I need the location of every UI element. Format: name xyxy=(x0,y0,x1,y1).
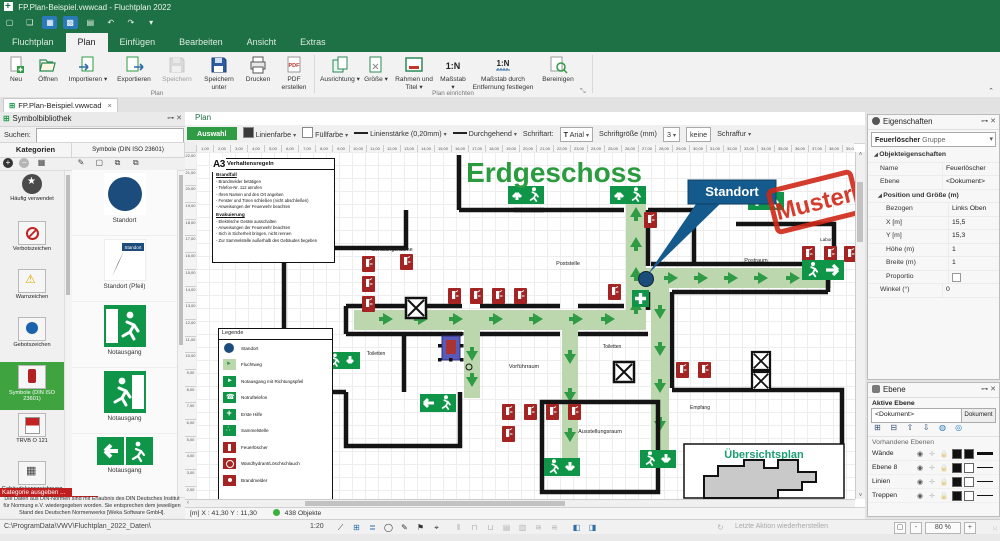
legend-row: Erste Hilfe xyxy=(219,406,332,423)
category-icon xyxy=(18,221,46,245)
legend-icon xyxy=(223,442,236,453)
room-label: Vorführraum xyxy=(509,364,540,370)
rules-section-title: Evakuierung xyxy=(216,212,331,219)
plus-icon[interactable]: ✛ xyxy=(926,478,938,486)
location-dot[interactable] xyxy=(639,272,654,287)
ruler-tick-label: 10,00 xyxy=(185,352,196,369)
close-icon[interactable]: ✕ xyxy=(176,115,182,122)
legend-row: Fluchtweg xyxy=(219,357,332,374)
neu-button[interactable]: Neu xyxy=(2,54,30,94)
canvas-vertical-scrollbar[interactable]: ˄˅ xyxy=(855,152,865,499)
legend-icon xyxy=(223,376,236,387)
category-item[interactable]: Symbole (DIN ISO 23601) xyxy=(0,362,64,410)
zoom-out-button[interactable]: - xyxy=(910,522,922,534)
ruler-tick-label: 15,00 xyxy=(185,269,196,286)
tab-extras[interactable]: Extras xyxy=(288,33,338,52)
exit-sign-up xyxy=(508,186,544,204)
exit-sign-down xyxy=(640,450,676,468)
delete-symbol-icon[interactable]: ▢ xyxy=(93,157,105,168)
eye-icon[interactable]: ◉ xyxy=(914,478,926,486)
tab-bearbeiten[interactable]: Bearbeiten xyxy=(167,33,235,52)
line-style-dropdown[interactable]: Durchgehend ▾ xyxy=(453,127,517,140)
importieren-button[interactable]: Importieren ▾ xyxy=(66,54,110,94)
plus-icon[interactable]: ✛ xyxy=(926,450,938,458)
align-right-icon[interactable]: ⊔ xyxy=(484,522,497,533)
tab-einfuegen[interactable]: Einfügen xyxy=(108,33,168,52)
lock-icon[interactable]: 🔒 xyxy=(938,450,950,458)
legend-icon xyxy=(223,409,236,420)
ungroup-icon[interactable]: ≌ xyxy=(548,522,561,533)
massstab-entfernung-button[interactable]: 1:N Maßstab durch Entfernung festlegen xyxy=(470,54,536,94)
category-toolbar: + − ▦ xyxy=(0,156,72,171)
overview-box: Übersichtsplan xyxy=(684,444,844,498)
legend-icon xyxy=(223,458,236,469)
document-tab-label: FP.Plan-Beispiel.vwwcad xyxy=(18,101,101,110)
active-layer-dropdown[interactable]: <Dokument>▾ xyxy=(871,408,967,423)
library-disclaimer: Die Daten aus DIN-Normen sind mit Erlaub… xyxy=(2,496,182,516)
speichern-unter-button[interactable]: Speichern unter xyxy=(198,54,240,94)
property-row[interactable]: NameFeuerlöscher xyxy=(868,163,999,177)
exit-sign-up xyxy=(610,186,646,204)
pdf-icon[interactable]: ▤ xyxy=(83,16,98,29)
remove-category-icon[interactable]: − xyxy=(19,158,29,168)
layer-list-label: Vorhandene Ebenen xyxy=(868,437,999,447)
add-category-icon[interactable]: + xyxy=(3,158,13,168)
rules-box[interactable]: A3 Verhaltensregeln Brandfall - Brandmel… xyxy=(212,158,335,263)
ruler-tick-label: 22,00 xyxy=(185,152,196,169)
app-icon xyxy=(4,2,13,11)
fill-color-dropdown[interactable]: Füllfarbe ▾ xyxy=(302,127,348,140)
first-aid-symbol[interactable] xyxy=(632,290,649,307)
object-count: 438 Objekte xyxy=(285,510,322,517)
library-icon: ⊞ xyxy=(3,114,10,123)
layer-row[interactable]: Ebene 8 ◉ ✛ 🔒 xyxy=(868,461,999,475)
legend-row: Standort xyxy=(219,340,332,357)
category-icon xyxy=(18,365,46,389)
ribbon-tabs: Fluchtplan Plan Einfügen Bearbeiten Ansi… xyxy=(0,33,1000,52)
muster-stamp[interactable]: Muster xyxy=(768,171,855,232)
room-label: Ausstellungsraum xyxy=(578,429,622,435)
line-sample xyxy=(977,452,993,455)
exit-sign-down xyxy=(544,458,580,476)
layer-row[interactable]: Treppen ◉ ✛ 🔒 xyxy=(868,489,999,503)
property-row[interactable]: BezogenLinks Oben xyxy=(868,203,999,217)
dialog-launcher-icon[interactable]: ⤡ xyxy=(580,88,586,96)
property-row[interactable]: Proportio xyxy=(868,271,999,285)
close-document-icon[interactable]: × xyxy=(108,101,112,110)
rahmen-und-titel-button[interactable]: Rahmen und Titel ▾ xyxy=(392,54,436,94)
font-dropdown[interactable]: T Arial ▾ xyxy=(560,127,593,142)
line-color-dropdown[interactable]: Linienfarbe ▾ xyxy=(243,127,297,140)
legend-icon xyxy=(223,475,236,486)
legend-row: Notruftelefon xyxy=(219,390,332,407)
pdf-erstellen-button[interactable]: PDF PDF erstellen xyxy=(276,54,312,94)
legend-row: Notausgang mit Richtungspfeil xyxy=(219,373,332,390)
room-label: Schulungsräume xyxy=(371,247,412,253)
fill-color-swatch[interactable] xyxy=(964,463,974,473)
pin-icon[interactable]: ⊶ xyxy=(981,118,988,125)
status-ok-icon xyxy=(273,509,280,516)
document-icon: ⊞ xyxy=(9,101,15,110)
scale2-icon-text: 1:N xyxy=(497,59,510,68)
category-item[interactable]: Verbotszeichen xyxy=(0,218,64,266)
document-button[interactable]: Dokument xyxy=(961,408,996,423)
oeffnen-button[interactable]: Öffnen xyxy=(32,54,64,94)
ruler-tick-label: 6,00 xyxy=(185,419,196,436)
symbol-item-standort[interactable]: Standort xyxy=(72,170,177,236)
legend-icon xyxy=(223,343,236,354)
select-button[interactable]: Auswahl xyxy=(187,127,237,140)
font-size-dropdown[interactable]: 3 ▾ xyxy=(663,127,680,142)
speichern-button[interactable]: Speichern xyxy=(158,54,196,94)
symbol-library-panel: ⊞Symbolbibliothek ⊶ ✕ Suchen: Kategorien… xyxy=(0,112,186,518)
symbol-item-standort-pfeil[interactable]: Standort Standort (Pfeil) xyxy=(72,236,177,302)
room-label: Poststelle xyxy=(556,261,580,267)
pen-tool-icon[interactable]: ✎ xyxy=(398,522,411,533)
groesse-button[interactable]: Größe ▾ xyxy=(362,54,390,94)
grid-toggle-icon[interactable]: ⊞ xyxy=(350,522,363,533)
ruler-tick-label: 11,00 xyxy=(185,336,196,353)
ruler-tick-label: 19,00 xyxy=(185,202,196,219)
eye-icon[interactable]: ◉ xyxy=(914,450,926,458)
room-label: Labor xyxy=(820,237,832,242)
search-input[interactable] xyxy=(36,128,184,143)
category-icon xyxy=(18,269,46,293)
fit-page-icon[interactable]: ▢ xyxy=(894,522,906,534)
scroll-left-icon: ‹ xyxy=(187,500,189,506)
application-window: FP.Plan-Beispiel.vwwcad - Fluchtplan 202… xyxy=(0,0,1000,541)
legend-row: Feuerlöscher xyxy=(219,439,332,456)
property-row[interactable]: Position und Größe (m) xyxy=(868,190,999,204)
category-icon xyxy=(18,413,46,437)
lock-icon[interactable]: 🔒 xyxy=(938,492,950,500)
ruler-tick-label: 13,00 xyxy=(185,302,196,319)
window-title: FP.Plan-Beispiel.vwwcad - Fluchtplan 202… xyxy=(18,3,171,12)
room-label: Toiletten xyxy=(367,351,386,357)
room-label: Empfang xyxy=(690,405,710,411)
rotate-left-icon[interactable]: ◧ xyxy=(570,522,583,533)
plan-canvas[interactable]: Standort Muster Erdgeschoss Schulungsräu… xyxy=(196,152,855,499)
ausrichtung-button[interactable]: Ausrichtung ▾ xyxy=(320,54,360,94)
ruler-tick-label: 8,00 xyxy=(185,386,196,403)
symbol-item-notausgang-2[interactable]: Notausgang xyxy=(72,368,177,434)
right-dock: Eigenschaften ⊶ ✕ Feuerlöscher Gruppe▾ O… xyxy=(865,112,1000,519)
resize-grip-icon: ⁙ xyxy=(992,523,998,537)
legend-row: Wandhydrant/Löschschlauch xyxy=(219,456,332,473)
category-item[interactable]: Gebäudekennzeichnung xyxy=(0,458,64,488)
category-icon xyxy=(18,461,46,485)
category-view-icon[interactable]: ▦ xyxy=(35,157,47,168)
exit-sign-right xyxy=(802,260,844,280)
align-center-icon[interactable]: ⊓ xyxy=(468,522,481,533)
room-label: Postraum xyxy=(744,258,768,264)
document-tab-bar: ⊞FP.Plan-Beispiel.vwwcad× xyxy=(0,97,1000,113)
tab-ansicht[interactable]: Ansicht xyxy=(235,33,289,52)
symbol-item-notausgang-3[interactable]: Notausgang xyxy=(72,434,177,496)
last-action-label: Letzte Aktion wiederherstellen xyxy=(735,520,828,534)
pdf-icon-text: PDF xyxy=(289,63,301,69)
scroll-down-icon: ˅ xyxy=(856,493,865,499)
layers-panel: Ebene ⊶ ✕ Aktive Ebene <Dokument>▾ Dokum… xyxy=(867,382,1000,517)
ribbon-group-plan: Plan xyxy=(2,90,312,97)
legend-box[interactable]: Legende StandortFluchtwegNotausgang mit … xyxy=(218,328,333,499)
collapse-ribbon-icon[interactable]: ⌃ xyxy=(988,87,994,95)
active-layer-label: Aktive Ebene xyxy=(868,398,999,408)
view-tab-bar: Plan xyxy=(185,112,865,126)
properties-panel: Eigenschaften ⊶ ✕ Feuerlöscher Gruppe▾ O… xyxy=(867,114,1000,380)
ruler-tick-label: 14,00 xyxy=(185,286,196,303)
rules-section-title: Brandfall xyxy=(216,172,331,179)
ribbon-group-plan-einrichten: Plan einrichten xyxy=(316,90,590,97)
view-tab-plan[interactable]: Plan xyxy=(195,113,211,122)
pin-icon[interactable]: ⊶ xyxy=(167,115,174,122)
plus-icon[interactable]: ✛ xyxy=(926,492,938,500)
fill-color-swatch[interactable] xyxy=(964,477,974,487)
zoom-in-button[interactable]: + xyxy=(964,522,976,534)
legend-row: Brandmelder xyxy=(219,472,332,489)
property-row[interactable]: Höhe (m)1 xyxy=(868,244,999,258)
ruler-tick-label: 5,00 xyxy=(185,436,196,453)
drawing-toolbar: Auswahl Linienfarbe ▾ Füllfarbe ▾ Linien… xyxy=(185,125,865,144)
new-layer-icon[interactable]: ⊞ xyxy=(871,422,884,433)
drucken-button[interactable]: Drucken xyxy=(242,54,274,94)
legend-icon xyxy=(223,392,236,403)
property-row[interactable]: Winkel (°)0 xyxy=(868,284,999,298)
rule-line: - Zur Sammelstelle außerhalb des Gebäude… xyxy=(216,238,331,244)
category-item[interactable]: Warnzeichen xyxy=(0,266,64,314)
line-color-swatch[interactable] xyxy=(952,449,962,459)
symbol-library-header: ⊞Symbolbibliothek ⊶ ✕ xyxy=(0,112,185,127)
lock-icon[interactable]: 🔒 xyxy=(938,478,950,486)
tab-fluchtplan[interactable]: Fluchtplan xyxy=(0,33,66,52)
property-row[interactable]: Ebene<Dokument> xyxy=(868,176,999,190)
ruler-tick-label: 7,00 xyxy=(185,402,196,419)
font-label: Schriftart: xyxy=(523,127,554,140)
rotate-right-icon[interactable]: ◨ xyxy=(586,522,599,533)
line-style-icon xyxy=(453,132,467,134)
hatch-dropdown[interactable]: Schraffur ▾ xyxy=(717,127,751,140)
category-item[interactable]: Häufig verwendet xyxy=(0,170,64,218)
category-item[interactable]: TRVB O 121 xyxy=(0,410,64,458)
cursor-coordinates: [m] X : 41,30 Y : 11,30 xyxy=(190,510,257,517)
category-list: Häufig verwendetVerbotszeichenWarnzeiche… xyxy=(0,170,64,488)
object-selector-dropdown[interactable]: Feuerlöscher Gruppe▾ xyxy=(871,132,996,147)
exit-sign-left xyxy=(420,394,456,412)
scale-icon-text: 1:N xyxy=(446,61,461,71)
export-symbol-icon[interactable]: ⧉ xyxy=(111,157,123,168)
ruler-tick-label: 2,00 xyxy=(185,486,196,499)
distribute-v-icon[interactable]: ▥ xyxy=(516,522,529,533)
fill-color-swatch[interactable] xyxy=(964,491,974,501)
distribute-h-icon[interactable]: ▤ xyxy=(500,522,513,533)
layers-toggle-icon[interactable]: ≣ xyxy=(366,522,379,533)
properties-title: Eigenschaften xyxy=(883,117,932,126)
pin-icon[interactable]: ⊶ xyxy=(981,386,988,393)
scroll-up-icon: ˄ xyxy=(856,152,865,158)
fill-color-swatch[interactable] xyxy=(964,449,974,459)
data-path: C:\ProgramData\VWV\Fluchtplan_2022_Daten… xyxy=(4,520,151,534)
line-width-icon xyxy=(354,132,368,134)
layer-row[interactable]: Linien ◉ ✛ 🔒 xyxy=(868,475,999,489)
zoom-control: ▢ - 80 % + xyxy=(893,522,977,532)
legend-row: Sammelstelle xyxy=(219,423,332,440)
massstab-button[interactable]: 1:N Maßstab ▾ xyxy=(438,54,468,94)
eye-icon[interactable]: ◉ xyxy=(914,464,926,472)
layer-list: Wände ◉ ✛ 🔒 Ebene 8 ◉ ✛ 🔒 Linien xyxy=(868,447,999,503)
ruler-tick-label: 4,00 xyxy=(185,452,196,469)
redo-last-icon[interactable]: ↻ xyxy=(714,522,727,533)
print-icon[interactable]: ▩ xyxy=(63,16,78,29)
ellipse-tool-icon[interactable]: ◯ xyxy=(382,522,395,533)
layer-color-icon[interactable]: ◍ xyxy=(936,422,949,433)
document-tab[interactable]: ⊞FP.Plan-Beispiel.vwwcad× xyxy=(3,98,118,113)
symbol-toolbar: ✎ ▢ ⧉ ⧉ xyxy=(72,156,185,171)
line-color-swatch[interactable] xyxy=(952,477,962,487)
ribbon: Neu Öffnen Importieren ▾ Exportieren Spe… xyxy=(0,52,1000,98)
layers-title: Ebene xyxy=(883,385,906,394)
rule-line: - Anweisungen der Feuerwehr beachten xyxy=(216,204,331,210)
plus-icon[interactable]: ✛ xyxy=(926,464,938,472)
canvas-region: Plan Auswahl Linienfarbe ▾ Füllfarbe ▾ L… xyxy=(185,112,865,519)
layer-row[interactable]: Wände ◉ ✛ 🔒 xyxy=(868,447,999,461)
line-width-dropdown[interactable]: Linienstärke (0,20mm) ▾ xyxy=(354,127,447,140)
line-color-swatch xyxy=(243,127,254,138)
ruler-tick-label: 12,00 xyxy=(185,319,196,336)
legend-icon xyxy=(223,425,236,436)
room-label: Toiletten xyxy=(603,344,622,350)
location-callout-label: Standort xyxy=(705,184,759,199)
ruler-tick-label: 18,00 xyxy=(185,219,196,236)
ruler-tick-label: 16,00 xyxy=(185,252,196,269)
font-size-label: Schriftgröße (mm) xyxy=(599,127,657,140)
save-icon[interactable]: ▦ xyxy=(42,16,57,29)
legend-title: Legende xyxy=(219,329,332,340)
tab-plan[interactable]: Plan xyxy=(66,33,108,52)
align-left-icon[interactable]: ⫴ xyxy=(452,522,465,533)
hatch-value-dropdown[interactable]: keine xyxy=(686,127,711,142)
snap-target-icon[interactable]: ⌖ xyxy=(430,522,443,533)
status-bar: C:\ProgramData\VWV\Fluchtplan_2022_Daten… xyxy=(0,519,1000,534)
title-bar: FP.Plan-Beispiel.vwwcad - Fluchtplan 202… xyxy=(0,0,1000,13)
layer-down-icon[interactable]: ⇩ xyxy=(920,422,933,433)
symbol-library-title: Symbolbibliothek xyxy=(13,114,72,123)
ruler-tool-icon[interactable]: ⟋ xyxy=(334,522,347,533)
ruler-tick-label: 21,00 xyxy=(185,169,196,186)
layer-fill-icon[interactable]: ◎ xyxy=(952,422,965,433)
quick-access-toolbar: ▢ ❏ ▦ ▩ ▤ ↶ ↷ ▾ xyxy=(0,13,1000,33)
properties-icon xyxy=(872,117,880,125)
property-row[interactable]: Breite (m)1 xyxy=(868,257,999,271)
flag-tool-icon[interactable]: ⚑ xyxy=(414,522,427,533)
category-item[interactable]: Gebotszeichen xyxy=(0,314,64,362)
rules-title: Verhaltensregeln xyxy=(213,159,334,170)
legend-icon xyxy=(223,359,236,370)
symbol-list: Standort Standort Standort (Pfeil) Notau… xyxy=(72,170,177,496)
line-sample xyxy=(977,467,993,468)
delete-layer-icon[interactable]: ⊟ xyxy=(887,422,900,433)
fill-color-swatch xyxy=(302,127,313,138)
property-row[interactable]: Objekteigenschaften xyxy=(868,149,999,163)
property-row[interactable]: X [m]15,5 xyxy=(868,217,999,231)
close-icon[interactable]: ✕ xyxy=(990,118,996,125)
quickbar-dropdown-icon[interactable]: ▾ xyxy=(144,16,159,29)
category-icon xyxy=(18,317,46,341)
layer-up-icon[interactable]: ⇧ xyxy=(903,422,916,433)
edit-symbol-icon[interactable]: ✎ xyxy=(75,157,87,168)
floor-title: Erdgeschoss xyxy=(466,157,642,188)
ruler-tick-label: 20,00 xyxy=(185,185,196,202)
page-size-marker: A3 xyxy=(212,157,226,172)
new-icon[interactable]: ▢ xyxy=(2,16,17,29)
category-icon xyxy=(19,173,45,195)
property-grid: ObjekteigenschaftenNameFeuerlöscherEbene… xyxy=(868,149,999,298)
undo-icon[interactable]: ↶ xyxy=(103,16,118,29)
bereinigen-button[interactable]: Bereinigen xyxy=(538,54,578,94)
import-symbol-icon[interactable]: ⧉ xyxy=(130,157,142,168)
redo-icon[interactable]: ↷ xyxy=(123,16,138,29)
ruler-tick-label: 3,00 xyxy=(185,469,196,486)
layer-toolbar: ⊞ ⊟ ⇧ ⇩ ◍ ◎ xyxy=(868,421,999,437)
group-icon[interactable]: ≋ xyxy=(532,522,545,533)
standort-arrow-label: Standort xyxy=(124,245,142,250)
ruler-tick-label: 9,00 xyxy=(185,369,196,386)
lock-icon[interactable]: 🔒 xyxy=(938,464,950,472)
layers-icon xyxy=(872,385,880,393)
line-color-swatch[interactable] xyxy=(952,491,962,501)
open-icon[interactable]: ❏ xyxy=(22,16,37,29)
line-color-swatch[interactable] xyxy=(952,463,962,473)
escape-route xyxy=(354,194,831,460)
line-sample xyxy=(977,495,993,496)
property-row[interactable]: Y [m]15,3 xyxy=(868,230,999,244)
ruler-tick-label: 17,00 xyxy=(185,235,196,252)
line-sample xyxy=(977,481,993,482)
symbol-item-notausgang-1[interactable]: Notausgang xyxy=(72,302,177,368)
exportieren-button[interactable]: Exportieren xyxy=(112,54,156,94)
scale-indicator: 1:20 xyxy=(310,520,324,534)
eye-icon[interactable]: ◉ xyxy=(914,492,926,500)
zoom-level: 80 % xyxy=(925,522,961,534)
search-label: Suchen: xyxy=(4,130,31,139)
close-icon[interactable]: ✕ xyxy=(990,386,996,393)
